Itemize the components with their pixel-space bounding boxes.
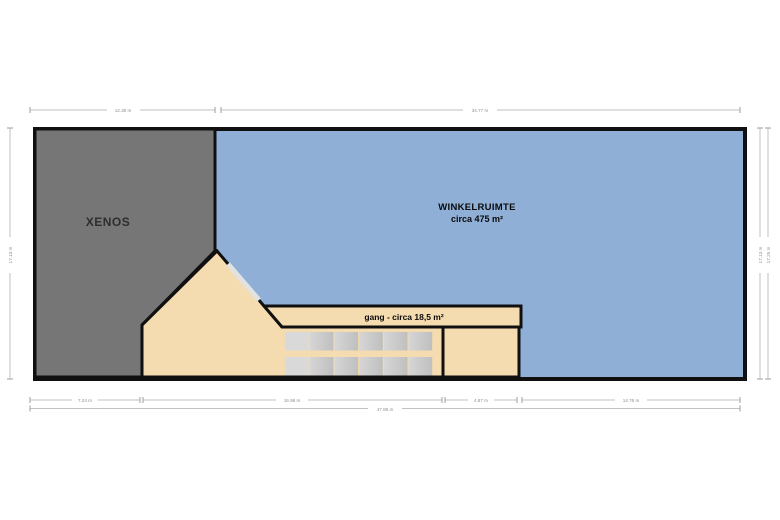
floorplan-svg: XENOS WINKELRUIMTE circa 475 m² gang - c… — [0, 0, 780, 520]
room-side — [443, 327, 519, 377]
stair-cell — [409, 357, 433, 376]
stair-cell — [384, 332, 408, 351]
dim-bottom-seg4: 14.76 m — [623, 398, 640, 403]
label-gang: gang - circa 18,5 m² — [364, 312, 444, 322]
dim-bottom-total: 47.89 m — [377, 407, 394, 412]
dim-top-left: 12.38 m — [115, 108, 132, 113]
dimension-bottom-total: 47.89 m — [30, 405, 740, 413]
dim-bottom-seg1: 7.24 m — [78, 398, 92, 403]
dim-right-outer: 17.25 m — [766, 247, 771, 264]
stair-cell — [384, 357, 408, 376]
stair-cell — [334, 357, 358, 376]
stair-cell — [359, 357, 383, 376]
dimension-right: 17.13 m 17.25 m — [756, 128, 772, 379]
stair-cell — [285, 357, 309, 376]
dim-bottom-seg2: 16.98 m — [284, 398, 301, 403]
dim-right-inner: 17.13 m — [758, 247, 763, 264]
stair-cell — [409, 332, 433, 351]
dim-top-right: 34.77 m — [472, 108, 489, 113]
stair-cell — [310, 332, 334, 351]
stair-cell — [334, 332, 358, 351]
stair-cell — [310, 357, 334, 376]
stair-cell — [359, 332, 383, 351]
label-winkelruimte-area: circa 475 m² — [451, 214, 503, 224]
dim-left: 17.13 m — [8, 247, 13, 264]
dimension-left: 17.13 m — [6, 128, 14, 379]
dimension-bottom-segments: 7.24 m 16.98 m 4.87 m 14.76 m — [30, 396, 740, 404]
dimension-top: 12.38 m 34.77 m — [30, 106, 740, 114]
label-xenos: XENOS — [86, 215, 131, 229]
label-winkelruimte: WINKELRUIMTE — [438, 202, 515, 213]
floorplan-page: XENOS WINKELRUIMTE circa 475 m² gang - c… — [0, 0, 780, 520]
stair-cell — [285, 332, 309, 351]
dim-bottom-seg3: 4.87 m — [474, 398, 488, 403]
